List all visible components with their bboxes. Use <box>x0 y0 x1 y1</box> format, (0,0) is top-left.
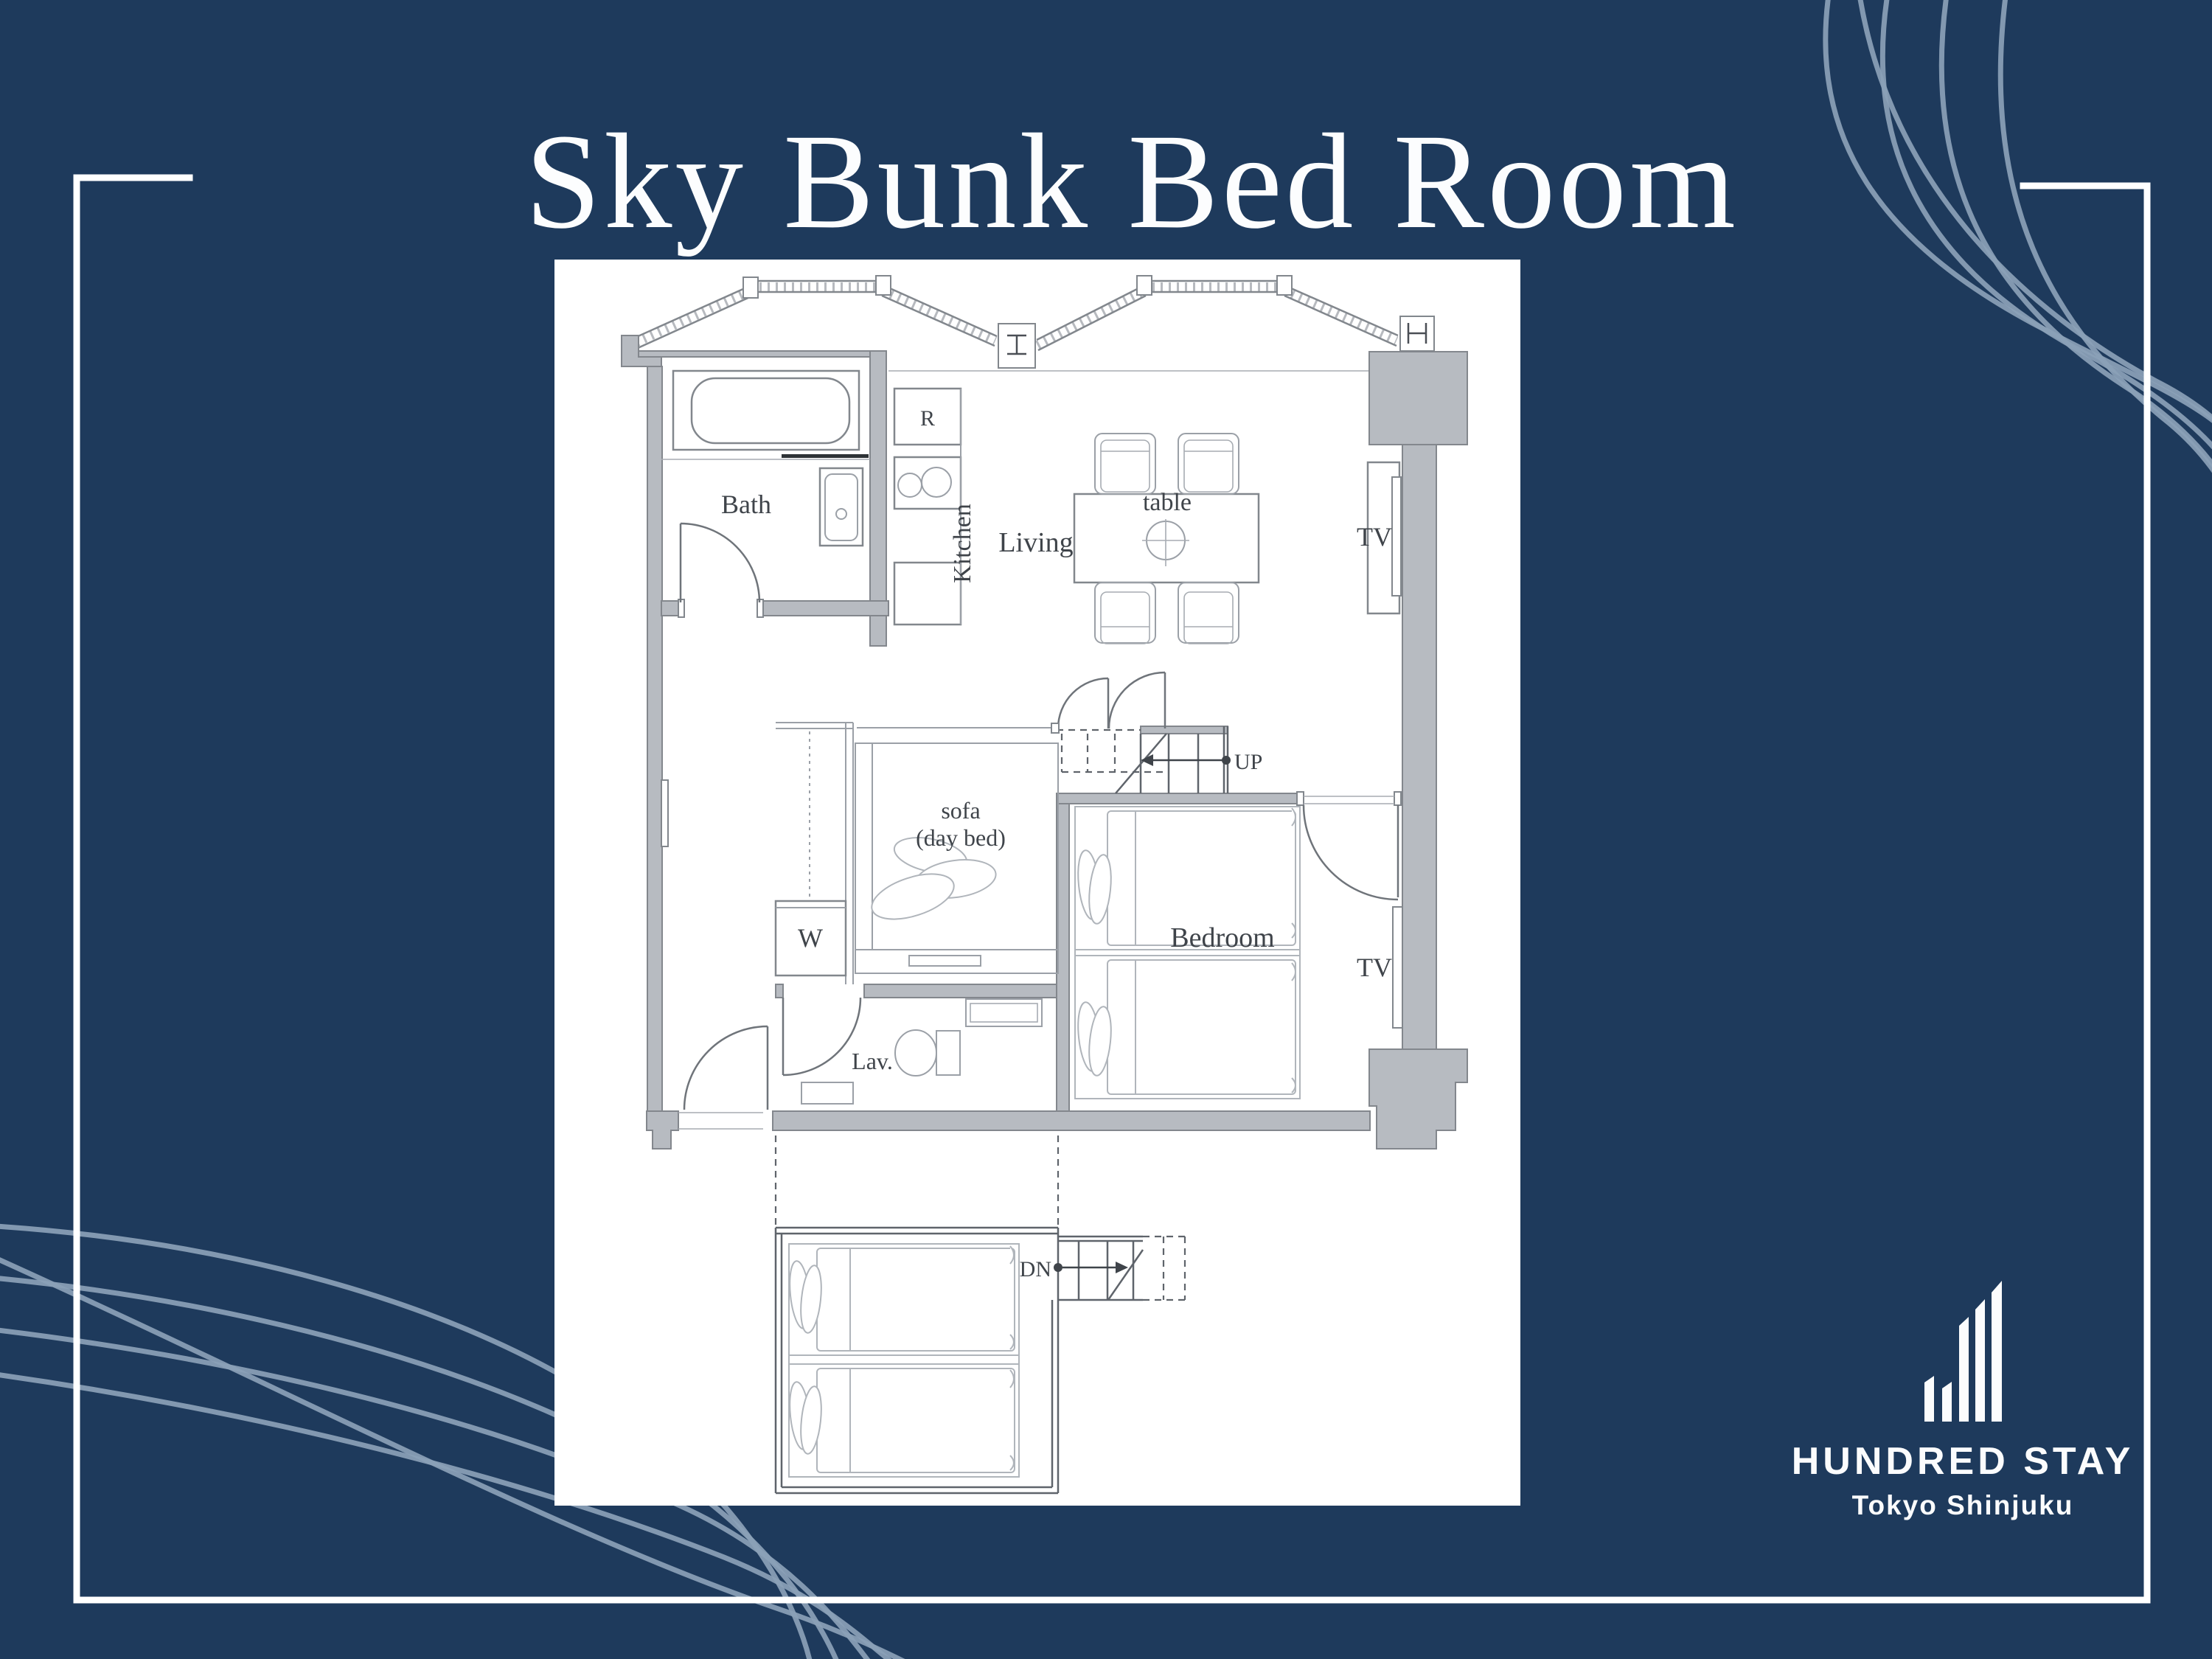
wave-decoration-top-right <box>1826 0 2212 667</box>
wall-bedroom-north <box>1057 793 1300 804</box>
washer-label: W <box>798 923 823 953</box>
bath-label: Bath <box>721 490 771 519</box>
bedroom-label: Bedroom <box>1170 922 1274 953</box>
wall-south <box>773 1111 1370 1130</box>
sofa-label-line1: sofa <box>941 797 980 824</box>
wall-bath-south-right <box>763 601 888 616</box>
wall-stair-north <box>1141 726 1228 734</box>
pillar-top-right <box>1369 352 1467 445</box>
wall-top <box>639 351 886 357</box>
hotel-logo: HUNDRED STAY Tokyo Shinjuku <box>1792 1281 2135 1520</box>
valley-column <box>998 324 1035 368</box>
wall-left <box>647 366 662 1111</box>
up-label: UP <box>1234 750 1262 774</box>
bath-counter-edge <box>782 454 869 458</box>
scene: Sky Bunk Bed Room <box>0 0 2212 1659</box>
logo-subtitle-text: Tokyo Shinjuku <box>1852 1490 2074 1520</box>
dn-label: DN <box>1020 1257 1051 1281</box>
lav-label: Lav. <box>852 1048 893 1074</box>
wall-right <box>1402 445 1436 1049</box>
sofa-label-line2: (day bed) <box>916 824 1006 851</box>
tv-living-label: TV <box>1357 522 1392 552</box>
window-joint <box>1137 276 1152 295</box>
right-window-column <box>1400 316 1434 351</box>
loft-beds <box>787 1244 1019 1477</box>
window-joint <box>876 276 891 295</box>
living-label: Living <box>998 527 1073 558</box>
door-jamb <box>1297 792 1304 805</box>
page-title: Sky Bunk Bed Room <box>525 106 1739 257</box>
wall-lav-north-right <box>864 984 1068 998</box>
logo-brand-text: HUNDRED STAY <box>1792 1440 2135 1483</box>
floor-plan-panel <box>554 260 1520 1506</box>
door-jamb <box>1051 723 1059 733</box>
window-joint <box>743 277 758 298</box>
window-joint <box>1277 276 1292 295</box>
refrigerator-label: R <box>920 406 935 431</box>
poster-canvas: Sky Bunk Bed Room <box>0 0 2212 1659</box>
wall-lav-north-left <box>776 984 783 998</box>
tv-bedroom-label: TV <box>1357 953 1392 982</box>
wall-bath-south-left <box>661 601 678 616</box>
left-wall-opening <box>661 780 668 846</box>
door-jamb <box>1394 792 1401 805</box>
tv-bedroom <box>1393 907 1402 1028</box>
building-bars-icon <box>1924 1281 2002 1422</box>
kitchen-label: Kitchen <box>949 504 976 583</box>
table-label: table <box>1143 489 1192 516</box>
